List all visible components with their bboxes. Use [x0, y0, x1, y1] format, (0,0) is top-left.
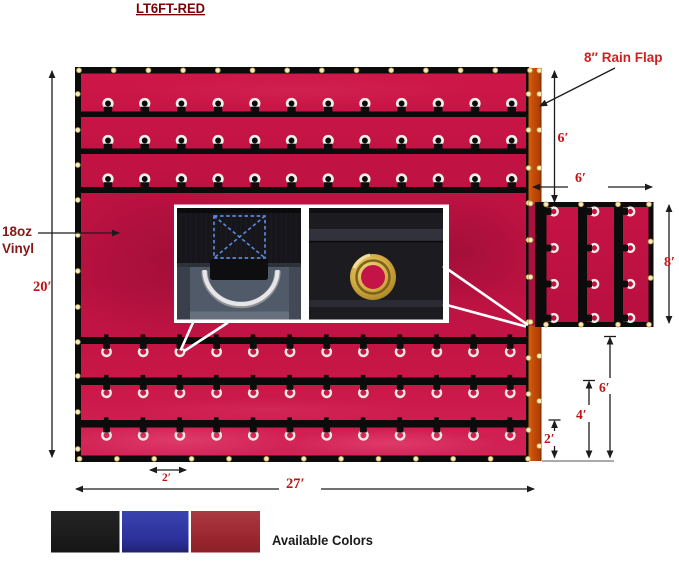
- svg-text:6′: 6′: [575, 171, 586, 186]
- svg-text:18oz: 18oz: [2, 224, 32, 239]
- svg-text:Available Colors: Available Colors: [272, 532, 373, 548]
- svg-text:8′: 8′: [664, 255, 675, 270]
- svg-text:20′: 20′: [33, 279, 52, 295]
- svg-text:8″ Rain Flap: 8″ Rain Flap: [584, 50, 662, 65]
- svg-text:6′: 6′: [558, 131, 569, 146]
- svg-text:27′: 27′: [286, 476, 305, 492]
- svg-text:2′: 2′: [544, 431, 555, 446]
- svg-text:2′: 2′: [162, 472, 171, 484]
- svg-text:6′: 6′: [599, 380, 610, 395]
- svg-text:Vinyl: Vinyl: [2, 241, 34, 256]
- svg-text:4′: 4′: [576, 407, 587, 422]
- svg-text:LT6FT-RED: LT6FT-RED: [136, 1, 205, 16]
